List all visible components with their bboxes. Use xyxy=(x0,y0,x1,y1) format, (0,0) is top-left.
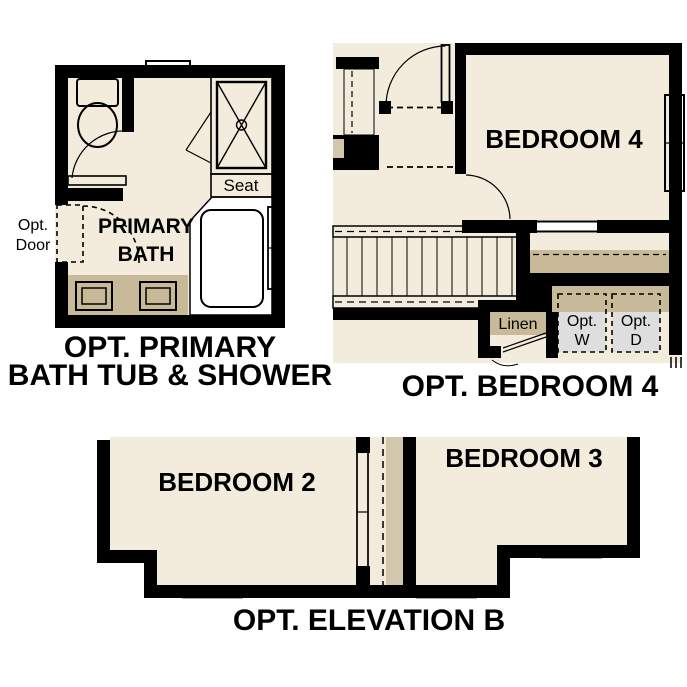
bedroom3-label: BEDROOM 3 xyxy=(445,443,602,473)
elevation-b-plan: BEDROOM 2 BEDROOM 3 OPT. ELEVATION B xyxy=(97,437,640,637)
closet-shelf xyxy=(530,250,669,273)
opt-door-label-line2: Door xyxy=(16,237,51,254)
primary-bath-label-line2: BATH xyxy=(118,243,175,266)
party-wall-strip xyxy=(386,437,403,585)
opt-door-label-line1: Opt. xyxy=(18,217,48,234)
elevation-b-title: OPT. ELEVATION B xyxy=(233,604,505,637)
dryer-label-line1: Opt. xyxy=(621,313,651,330)
bedroom4-title: OPT. BEDROOM 4 xyxy=(402,370,659,403)
dryer-label-line2: D xyxy=(630,332,642,349)
primary-bath-title-line2: BATH TUB & SHOWER xyxy=(8,359,333,392)
hall-opening xyxy=(537,220,597,233)
washer-label-line1: Opt. xyxy=(567,313,597,330)
bedroom4-plan: Opt. W Opt. D Linen xyxy=(333,43,684,403)
seat-label: Seat xyxy=(224,176,259,195)
floorplan-canvas: Seat PRIMARY BATH Opt. Door OPT. PRIMARY… xyxy=(0,0,687,687)
primary-bath-plan: Seat PRIMARY BATH Opt. Door OPT. PRIMARY… xyxy=(8,61,333,392)
primary-bath-label-line1: PRIMARY xyxy=(98,215,194,238)
floorplan-sheet: Seat PRIMARY BATH Opt. Door OPT. PRIMARY… xyxy=(0,0,687,687)
bedroom2-label: BEDROOM 2 xyxy=(158,467,315,497)
washer-label-line2: W xyxy=(574,332,590,349)
bedroom4-label: BEDROOM 4 xyxy=(485,124,643,154)
wd-shelf xyxy=(552,286,669,312)
linen-label: Linen xyxy=(498,316,537,333)
